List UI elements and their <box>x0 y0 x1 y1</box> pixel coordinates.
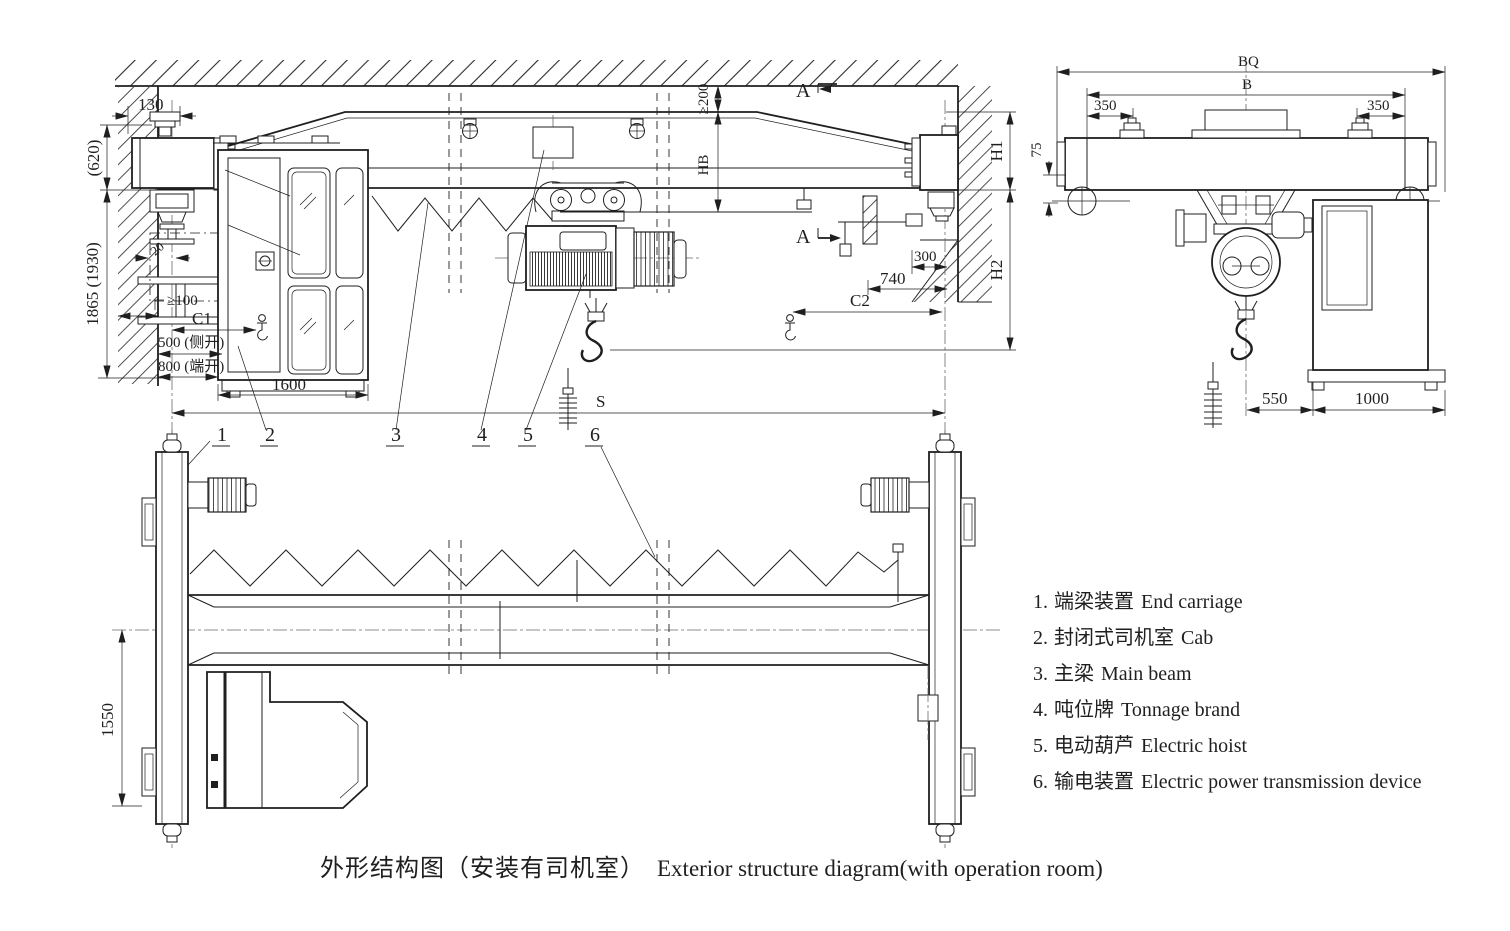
callout-1: 1 <box>212 424 230 446</box>
dim-b-label: B <box>1242 77 1252 93</box>
buffer-icon <box>1120 118 1144 138</box>
legend-num: 6. <box>1033 771 1048 793</box>
buffer-icon <box>1348 118 1372 138</box>
legend-num: 4. <box>1033 699 1048 721</box>
legend-item-main-beam: 3.主梁Main beam <box>1033 656 1421 692</box>
dim-h1-label: H1 <box>987 141 1006 162</box>
festoon-cable-plan <box>190 544 903 602</box>
legend-item-electric-hoist: 5.电动葫芦Electric hoist <box>1033 728 1421 764</box>
dim-350r-label: 350 <box>1367 98 1390 114</box>
legend-en: End carriage <box>1141 591 1243 613</box>
dim-c1-label: C1 <box>192 309 212 328</box>
drawing-caption: 外形结构图（安装有司机室）Exterior structure diagram(… <box>320 848 1220 883</box>
hoist-drum-side <box>1212 228 1280 296</box>
travel-wheel-side-left <box>1052 187 1130 215</box>
callout-4-label: 4 <box>477 424 487 446</box>
cab-plan <box>207 672 367 808</box>
legend-en: Cab <box>1181 627 1213 649</box>
dim-hb-label: HB <box>696 155 712 176</box>
callout-1-label: 1 <box>217 424 227 446</box>
dim-300-label: 300 <box>914 249 937 265</box>
legend-item-end-carriage: 1.端梁装置End carriage <box>1033 584 1421 620</box>
dim-130-label: 130 <box>138 95 164 114</box>
dim-620-label: (620) <box>84 140 103 177</box>
ceiling-hatch <box>115 60 958 86</box>
legend-zh: 封闭式司机室 <box>1054 627 1174 649</box>
legend-num: 3. <box>1033 663 1048 685</box>
legend-num: 1. <box>1033 591 1048 613</box>
dim-1865-label: 1865 (1930) <box>83 242 102 326</box>
dim-1600-label: 1600 <box>272 375 306 394</box>
hook-icon <box>1232 296 1257 359</box>
legend-num: 2. <box>1033 627 1048 649</box>
callout-6-label: 6 <box>590 424 600 446</box>
dim-1000-label: 1000 <box>1355 389 1389 408</box>
dim-550-label: 550 <box>1262 389 1288 408</box>
festoon-cable-front <box>372 196 552 231</box>
section-mark-a-mid: A <box>796 226 841 248</box>
dim-hb: HB <box>696 112 718 212</box>
dim-1550-label: 1550 <box>98 703 117 737</box>
callout-4: 4 <box>472 424 490 446</box>
section-a-top-label: A <box>796 80 811 102</box>
plan-view: 1550 <box>98 430 1000 848</box>
drawing-sheet: 130 (620) 1865 (1930) 20 ≥100 C1 500 (侧开… <box>0 0 1510 931</box>
dim-ge200-label: ≥200 <box>696 84 712 115</box>
hoist-motor-side <box>1272 212 1312 238</box>
side-view: BQ B 350 350 <box>1029 54 1445 428</box>
electric-hoist-side <box>1176 190 1312 359</box>
dim-550: 550 <box>1247 389 1313 410</box>
section-a-mid-label: A <box>796 226 811 248</box>
legend-num: 5. <box>1033 735 1048 757</box>
dim-75-label: 75 <box>1029 143 1045 158</box>
legend-item-power-device: 6.输电装置Electric power transmission device <box>1033 764 1421 800</box>
beam-bolt-icon <box>462 119 478 139</box>
dim-ge200: ≥200 <box>696 84 718 115</box>
legend-zh: 主梁 <box>1054 663 1094 685</box>
callout-2: 2 <box>260 424 278 446</box>
hoist-motor-front <box>634 232 686 286</box>
legend-en: Electric power transmission device <box>1141 771 1421 793</box>
callout-3-label: 3 <box>391 424 401 446</box>
callout-6: 6 <box>585 424 603 446</box>
legend-en: Tonnage brand <box>1121 699 1240 721</box>
dim-500-label: 500 (侧开) <box>158 334 224 351</box>
dim-bq-label: BQ <box>1238 54 1259 70</box>
legend-item-cab: 2.封闭式司机室Cab <box>1033 620 1421 656</box>
end-carriage-plan-right <box>861 434 975 842</box>
left-wall-hatch <box>118 86 158 386</box>
callout-3: 3 <box>386 424 404 446</box>
dim-800-label: 800 (端开) <box>158 358 224 375</box>
front-elevation-view: 130 (620) 1865 (1930) 20 ≥100 C1 500 (侧开… <box>83 60 1016 446</box>
dim-1865: 1865 (1930) <box>83 190 107 378</box>
cab-side <box>1308 200 1445 416</box>
cab-front <box>213 136 368 397</box>
legend-item-tonnage-brand: 4.吨位牌Tonnage brand <box>1033 692 1421 728</box>
callout-2-label: 2 <box>265 424 275 446</box>
beam-bracket <box>797 188 811 209</box>
travel-motor-plan-right <box>861 478 929 512</box>
legend-en: Electric hoist <box>1141 735 1247 757</box>
dim-500: 500 (侧开) <box>158 334 224 354</box>
travel-motor-plan-left <box>188 478 256 512</box>
legend-en: Main beam <box>1101 663 1192 685</box>
legend-zh: 输电装置 <box>1054 771 1134 793</box>
dim-h2-label: H2 <box>987 260 1006 281</box>
dim-350l-label: 350 <box>1094 98 1117 114</box>
callout-5: 5 <box>518 424 536 446</box>
dim-1550: 1550 <box>98 630 142 806</box>
caption-zh: 外形结构图（安装有司机室） <box>320 856 645 882</box>
tonnage-plate <box>533 115 573 170</box>
legend-zh: 端梁装置 <box>1054 591 1134 613</box>
callout-5-label: 5 <box>523 424 533 446</box>
beam-bolt-icon <box>629 119 645 139</box>
dim-1000: 1000 <box>1313 389 1445 410</box>
dim-ge100-label: ≥100 <box>167 293 198 309</box>
legend-zh: 电动葫芦 <box>1054 735 1134 757</box>
dim-c2-label: C2 <box>850 291 870 310</box>
parts-legend: 1.端梁装置End carriage 2.封闭式司机室Cab 3.主梁Main … <box>1033 584 1421 800</box>
power-feed-column-side <box>1204 362 1222 428</box>
dim-800: 800 (端开) <box>158 358 224 377</box>
power-feed-column <box>559 368 577 430</box>
dim-740-label: 740 <box>880 269 906 288</box>
hook-icon <box>582 298 607 361</box>
caption-en: Exterior structure diagram(with operatio… <box>657 856 1103 881</box>
dim-span-label: S <box>596 392 605 411</box>
legend-zh: 吨位牌 <box>1054 699 1114 721</box>
hook-position-icon <box>785 315 796 340</box>
